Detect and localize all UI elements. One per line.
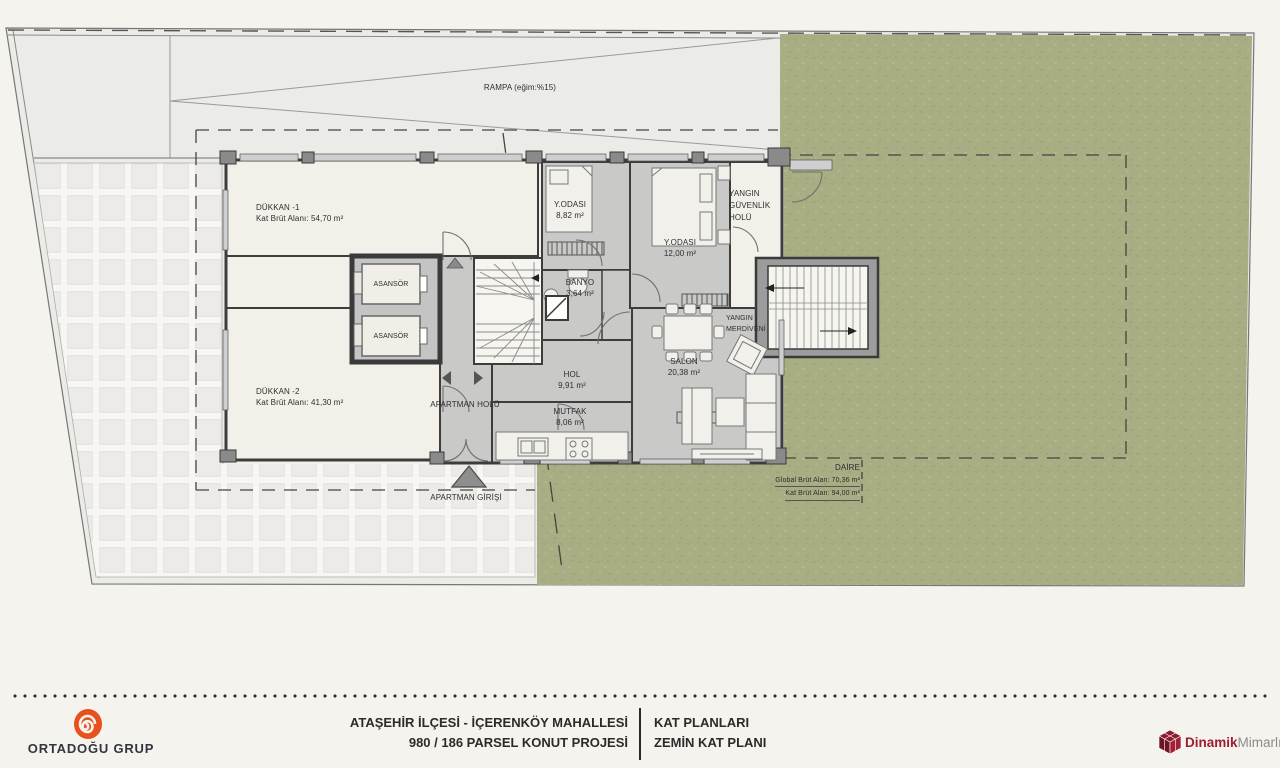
right-logo-secondary: Mimarlık <box>1238 735 1280 750</box>
room-label-mutfak: MUTFAK 8,06 m² <box>538 407 602 429</box>
fire-stair <box>756 258 878 357</box>
dukkan2-name: DÜKKAN -2 <box>256 387 343 398</box>
room-label-apartman-holu: APARTMAN HOLÜ <box>430 400 500 411</box>
room-label-asansor-2: ASANSÖR <box>362 332 420 341</box>
room-label-salon: SALON 20,38 m² <box>652 357 716 379</box>
room-label-hol: HOL 9,91 m² <box>542 370 602 392</box>
spiral-icon <box>70 707 106 741</box>
daire-global-brut: Global Brüt Alan: 70,36 m² <box>775 476 860 488</box>
daire-summary: DAİRE Global Brüt Alan: 70,36 m² Kat Brü… <box>700 462 860 501</box>
right-logo-primary: Dinamik <box>1185 735 1238 750</box>
room-label-yangin-guvenlik-holu: YANGIN GÜVENLİK HOLÜ <box>729 188 783 224</box>
location-line2: 980 / 186 PARSEL KONUT PROJESİ <box>200 733 628 753</box>
site-plan-sheet: RAMPA (eğim:%15) DÜKKAN -1 Kat Brüt Alan… <box>0 0 1280 768</box>
room-label-yangin-merdiveni: YANGIN MERDİVENİ <box>726 314 778 335</box>
dukkan1-name: DÜKKAN -1 <box>256 203 343 214</box>
label-apartman-girisi: APARTMAN GİRİŞİ <box>428 492 504 505</box>
plan-title: KAT PLANLARI ZEMİN KAT PLANI <box>654 713 874 753</box>
plan-line1: KAT PLANLARI <box>654 713 874 733</box>
location-line1: ATAŞEHİR İLÇESİ - İÇERENKÖY MAHALLESİ <box>200 713 628 733</box>
plan-line2: ZEMİN KAT PLANI <box>654 733 874 753</box>
ramp-label: RAMPA (eğim:%15) <box>455 83 585 94</box>
right-logo: DinamikMimarlık <box>1158 729 1280 755</box>
core-stair <box>474 258 542 364</box>
titlebar-divider <box>639 708 641 760</box>
room-label-asansor-1: ASANSÖR <box>362 280 420 289</box>
cube-icon <box>1158 729 1182 755</box>
dukkan1-area: Kat Brüt Alanı: 54,70 m² <box>256 214 343 225</box>
site-plan-drawing <box>0 0 1280 768</box>
dotted-separator <box>10 694 1270 698</box>
left-logo-text: ORTADOĞU GRUP <box>6 741 176 756</box>
room-label-yodasi1: Y.ODASI 8,82 m² <box>538 200 602 222</box>
room-label-dukkan1: DÜKKAN -1 Kat Brüt Alanı: 54,70 m² <box>256 203 343 225</box>
dukkan2-area: Kat Brüt Alanı: 41,30 m² <box>256 398 343 409</box>
daire-kat-brut: Kat Brüt Alan: 94,00 m² <box>785 489 860 501</box>
room-label-dukkan2: DÜKKAN -2 Kat Brüt Alanı: 41,30 m² <box>256 387 343 409</box>
room-label-yodasi2: Y.ODASI 12,00 m² <box>642 238 718 260</box>
elevator-core <box>352 256 440 362</box>
project-location: ATAŞEHİR İLÇESİ - İÇERENKÖY MAHALLESİ 98… <box>200 713 628 753</box>
daire-title: DAİRE <box>700 462 860 474</box>
room-label-banyo: BANYO 3,64 m² <box>554 278 606 300</box>
